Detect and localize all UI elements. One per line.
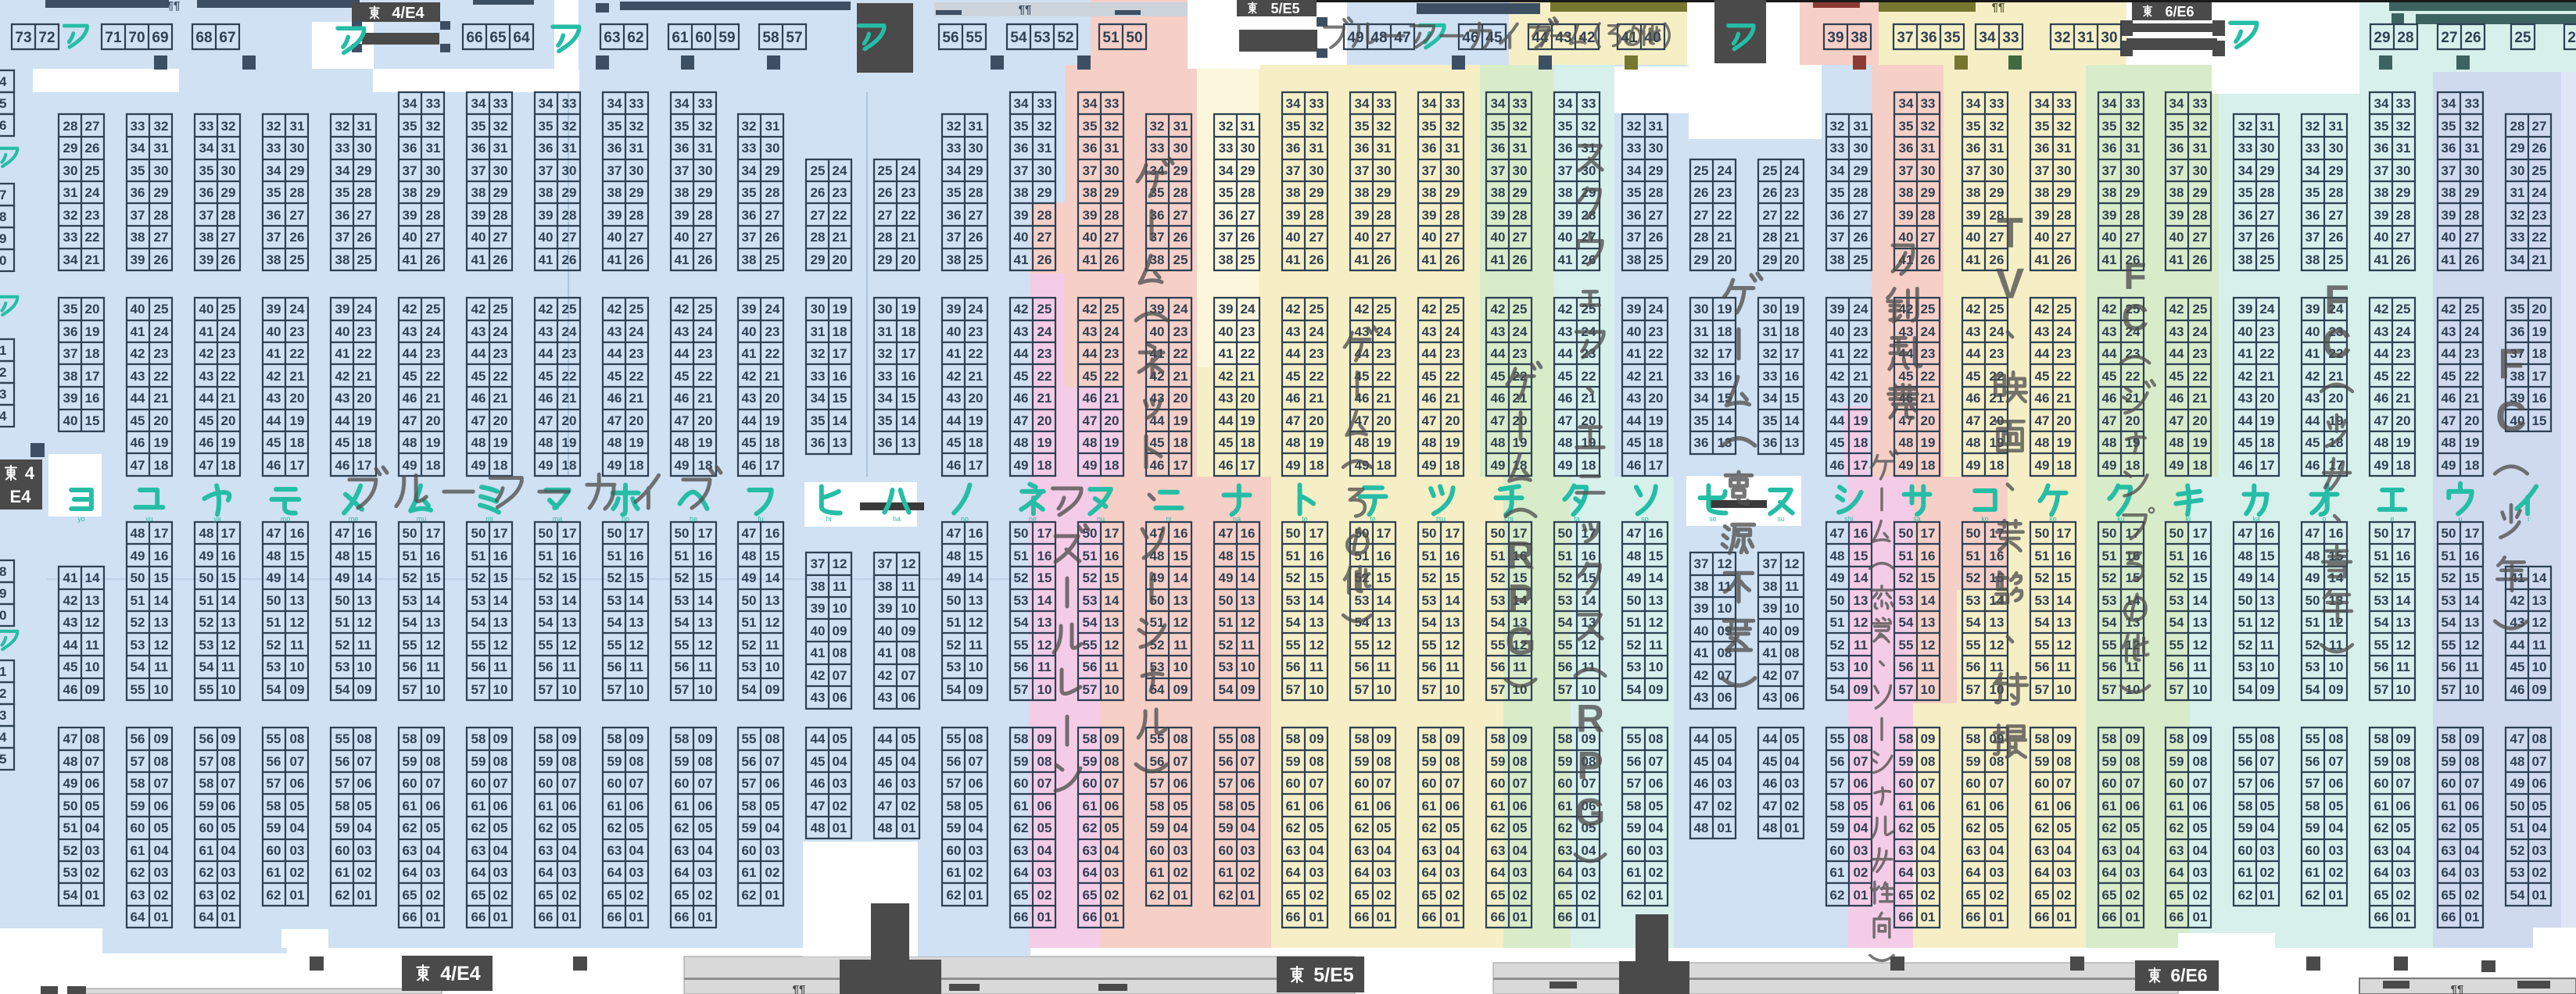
svg-text:20: 20 [629,413,644,428]
svg-text:23: 23 [2465,346,2480,361]
svg-text:10: 10 [901,601,916,616]
svg-text:57: 57 [1150,776,1165,791]
svg-text:43: 43 [2035,324,2050,339]
svg-text:45: 45 [199,413,214,428]
svg-text:31: 31 [493,141,508,156]
svg-text:60: 60 [1083,776,1098,791]
svg-text:38: 38 [63,369,78,384]
svg-text:36: 36 [335,208,350,223]
svg-text:22: 22 [2465,369,2480,384]
svg-text:66: 66 [2035,910,2050,924]
svg-text:49: 49 [1558,458,1573,473]
svg-text:22: 22 [85,230,100,245]
svg-text:27: 27 [2193,230,2208,245]
svg-text:58: 58 [1355,731,1370,746]
svg-text:50: 50 [131,570,145,585]
svg-text:60: 60 [1355,776,1370,791]
svg-text:57: 57 [1966,682,1981,697]
svg-text:60: 60 [1830,843,1845,858]
svg-text:13: 13 [493,615,508,630]
svg-text:54: 54 [742,682,757,697]
svg-text:05: 05 [833,731,847,746]
svg-text:10: 10 [357,660,372,674]
svg-text:36: 36 [1422,141,1437,156]
svg-text:29: 29 [2126,185,2141,200]
svg-text:63: 63 [1422,843,1437,858]
svg-text:52: 52 [335,638,350,653]
svg-text:15: 15 [85,413,100,428]
svg-text:53: 53 [1899,593,1914,608]
svg-text:18: 18 [1921,458,1936,473]
svg-text:12: 12 [1649,615,1664,630]
svg-text:30: 30 [1649,141,1664,156]
svg-text:46: 46 [1014,391,1029,406]
svg-text:45: 45 [2169,369,2184,384]
svg-text:45: 45 [742,435,757,450]
svg-text:37: 37 [1627,230,1642,245]
svg-text:51: 51 [471,549,486,563]
svg-text:33: 33 [1627,141,1642,156]
svg-text:57: 57 [2102,682,2117,697]
svg-text:31: 31 [2510,185,2525,200]
svg-text:36: 36 [675,141,690,156]
svg-text:64: 64 [2102,865,2117,880]
svg-text:21: 21 [1446,391,1460,406]
svg-text:22: 22 [1173,346,1188,361]
svg-text:22: 22 [2260,346,2275,361]
svg-text:04: 04 [1309,843,1324,858]
svg-text:shi: shi [1844,515,1854,523]
svg-text:02: 02 [2329,865,2344,880]
svg-text:04: 04 [1854,821,1868,835]
svg-text:21: 21 [493,391,508,406]
svg-text:01: 01 [1921,910,1936,924]
svg-text:01: 01 [1718,821,1732,835]
svg-text:08: 08 [1037,754,1052,769]
svg-text:53: 53 [1014,593,1029,608]
svg-text:e: e [2390,515,2394,523]
svg-text:39: 39 [2169,208,2184,223]
svg-text:60: 60 [267,843,281,858]
svg-text:24: 24 [1309,324,1324,339]
svg-text:61: 61 [947,865,962,880]
svg-text:05: 05 [901,731,916,746]
svg-text:40: 40 [2035,230,2050,245]
svg-text:52: 52 [2035,570,2050,585]
svg-text:56: 56 [2442,660,2456,674]
svg-text:24: 24 [2193,324,2208,339]
svg-text:10: 10 [562,682,577,697]
svg-text:05: 05 [1921,821,1936,835]
svg-text:18: 18 [2126,458,2141,473]
svg-text:24: 24 [1377,324,1392,339]
svg-text:53: 53 [403,593,417,608]
svg-text:47: 47 [1422,413,1437,428]
svg-text:66: 66 [2102,910,2117,924]
svg-text:20: 20 [2396,413,2411,428]
svg-text:28: 28 [878,230,893,245]
svg-text:08: 08 [357,731,372,746]
svg-text:15: 15 [1921,570,1936,585]
svg-text:34: 34 [742,163,757,178]
svg-text:24: 24 [426,324,441,339]
svg-text:05: 05 [2126,821,2141,835]
svg-text:01: 01 [2126,910,2141,924]
svg-text:64: 64 [1014,865,1029,880]
svg-text:03: 03 [1241,843,1256,858]
svg-text:38: 38 [1355,185,1370,200]
svg-text:20: 20 [1037,413,1052,428]
svg-text:64: 64 [0,730,7,745]
svg-text:15: 15 [2260,549,2275,563]
svg-text:21: 21 [1718,230,1732,245]
svg-text:56: 56 [1219,754,1234,769]
svg-text:53: 53 [1219,660,1234,674]
svg-text:07: 07 [562,776,577,791]
svg-text:27: 27 [2441,30,2457,46]
svg-text:61: 61 [471,799,486,813]
svg-text:01: 01 [221,910,236,924]
svg-text:01: 01 [2396,910,2411,924]
svg-text:02: 02 [1173,865,1188,880]
svg-text:61: 61 [1014,799,1029,813]
svg-text:39: 39 [675,208,690,223]
svg-text:40: 40 [1219,324,1234,339]
svg-text:05: 05 [493,821,508,835]
svg-text:57: 57 [607,682,622,697]
svg-text:33: 33 [426,96,441,111]
svg-text:24: 24 [2057,324,2072,339]
svg-text:38: 38 [1286,185,1301,200]
svg-text:44: 44 [1491,346,1506,361]
svg-text:65: 65 [1083,888,1098,903]
svg-text:16: 16 [85,391,100,406]
svg-text:01: 01 [1173,888,1188,903]
svg-text:11: 11 [1241,638,1255,653]
svg-text:18: 18 [1105,458,1120,473]
svg-text:18: 18 [1854,435,1868,450]
svg-text:42: 42 [1558,302,1573,316]
svg-text:35: 35 [1355,119,1370,134]
svg-text:25: 25 [562,302,577,316]
svg-text:58: 58 [1422,731,1437,746]
svg-text:58: 58 [947,799,962,813]
svg-text:61: 61 [742,865,757,880]
svg-text:59: 59 [947,821,962,835]
svg-text:54: 54 [675,615,690,630]
svg-text:08: 08 [1513,754,1528,769]
svg-text:16: 16 [1377,549,1392,563]
svg-text:63: 63 [0,708,6,723]
svg-text:53: 53 [199,638,214,653]
svg-text:63: 63 [1355,843,1370,858]
svg-text:59: 59 [539,754,554,769]
svg-text:09: 09 [221,731,236,746]
svg-text:16: 16 [1854,526,1868,541]
svg-text:46: 46 [0,118,6,133]
svg-text:E4: E4 [10,487,32,506]
svg-text:36: 36 [2374,141,2389,156]
svg-text:46: 46 [1083,391,1098,406]
svg-text:28: 28 [2396,208,2411,223]
svg-text:27: 27 [2329,208,2344,223]
svg-text:17: 17 [1173,458,1188,473]
svg-text:36: 36 [2510,324,2525,339]
svg-text:32: 32 [2193,119,2208,134]
svg-text:50: 50 [947,593,962,608]
svg-text:58: 58 [1966,731,1981,746]
svg-text:28: 28 [1854,185,1868,200]
svg-text:32: 32 [1105,119,1120,134]
svg-text:13: 13 [290,593,305,608]
svg-text:40: 40 [1899,230,1914,245]
svg-text:34: 34 [1830,163,1845,178]
svg-text:57: 57 [2306,776,2320,791]
svg-text:11: 11 [1649,638,1663,653]
svg-text:01: 01 [2260,888,2275,903]
svg-text:38: 38 [1627,252,1642,267]
svg-text:37: 37 [1558,163,1573,178]
svg-text:26: 26 [1309,252,1324,267]
svg-text:23: 23 [2396,346,2411,361]
svg-text:37: 37 [403,163,417,178]
svg-text:44: 44 [403,346,417,361]
svg-text:18: 18 [1718,324,1732,339]
svg-text:37: 37 [878,556,893,571]
svg-text:59: 59 [199,799,214,813]
svg-text:10: 10 [85,660,100,674]
svg-text:04: 04 [969,821,983,835]
svg-text:49: 49 [2510,776,2525,791]
svg-text:20: 20 [154,413,169,428]
svg-text:45: 45 [2306,435,2320,450]
svg-text:17: 17 [1309,526,1324,541]
svg-text:31: 31 [1446,141,1460,156]
svg-text:23: 23 [1446,346,1460,361]
svg-text:19: 19 [833,302,847,316]
svg-text:14: 14 [493,593,508,608]
svg-text:16: 16 [1990,549,2005,563]
svg-text:04: 04 [2193,843,2208,858]
svg-text:51: 51 [2510,821,2525,835]
svg-text:11: 11 [833,579,847,594]
svg-text:31: 31 [698,141,713,156]
svg-text:50: 50 [1219,593,1234,608]
svg-text:06: 06 [2057,799,2072,813]
svg-text:08: 08 [426,754,441,769]
svg-text:16: 16 [1309,549,1324,563]
svg-text:09: 09 [1309,731,1324,746]
svg-text:11: 11 [2532,638,2546,653]
svg-text:09: 09 [2126,731,2141,746]
svg-text:12: 12 [1377,638,1392,653]
svg-text:40: 40 [2442,230,2456,245]
svg-text:49: 49 [63,776,78,791]
svg-text:51: 51 [607,549,622,563]
svg-text:30: 30 [1037,163,1052,178]
svg-text:07: 07 [1037,776,1052,791]
svg-text:62: 62 [1083,821,1098,835]
svg-text:17: 17 [765,458,780,473]
svg-text:48: 48 [2306,549,2320,563]
svg-text:20: 20 [1309,413,1324,428]
svg-text:05: 05 [1649,799,1664,813]
svg-text:19: 19 [2396,435,2411,450]
svg-text:45: 45 [1966,369,1981,384]
svg-text:64: 64 [2442,865,2456,880]
svg-text:14: 14 [2465,593,2480,608]
svg-text:60: 60 [1627,843,1642,858]
svg-text:55: 55 [335,731,350,746]
svg-text:60: 60 [947,843,962,858]
svg-text:57: 57 [471,682,486,697]
svg-text:52: 52 [2169,570,2184,585]
svg-text:04: 04 [2329,821,2344,835]
svg-text:22: 22 [765,346,780,361]
svg-text:49: 49 [1014,458,1029,473]
svg-text:63: 63 [604,30,620,46]
svg-text:28: 28 [426,208,441,223]
svg-text:17: 17 [1037,526,1052,541]
svg-text:55: 55 [1355,638,1370,653]
svg-text:66: 66 [1558,910,1573,924]
svg-text:62: 62 [403,821,417,835]
svg-text:28: 28 [811,230,826,245]
svg-text:04: 04 [1105,843,1120,858]
svg-text:32: 32 [2465,119,2480,134]
svg-text:17: 17 [629,526,644,541]
svg-text:07: 07 [1649,754,1664,769]
svg-text:19: 19 [221,435,236,450]
svg-text:14: 14 [629,593,644,608]
svg-text:03: 03 [2329,843,2344,858]
svg-text:11: 11 [154,660,168,674]
svg-text:12: 12 [1854,615,1868,630]
svg-text:21: 21 [1854,369,1868,384]
svg-text:05: 05 [2329,799,2344,813]
svg-text:03: 03 [357,843,372,858]
svg-text:12: 12 [901,556,916,571]
svg-text:18: 18 [1241,435,1256,450]
svg-text:42: 42 [2374,302,2389,316]
svg-text:25: 25 [85,163,100,178]
svg-text:01: 01 [562,910,577,924]
svg-text:16: 16 [1649,526,1664,541]
svg-text:60: 60 [2238,843,2253,858]
svg-text:30: 30 [969,141,983,156]
svg-text:34: 34 [1979,30,1996,46]
svg-text:28: 28 [2057,208,2072,223]
svg-text:43: 43 [471,324,486,339]
svg-text:29: 29 [562,185,577,200]
svg-text:18: 18 [290,435,305,450]
svg-text:57: 57 [267,776,281,791]
svg-text:43: 43 [1219,391,1234,406]
svg-text:14: 14 [1377,593,1392,608]
svg-text:04: 04 [1377,843,1392,858]
svg-text:46: 46 [742,458,757,473]
svg-text:P: P [1507,576,1533,620]
svg-text:13: 13 [1921,615,1936,630]
svg-text:22: 22 [357,346,372,361]
svg-text:24: 24 [357,302,372,316]
svg-text:48: 48 [2035,435,2050,450]
svg-text:12: 12 [2532,615,2547,630]
svg-text:31: 31 [2465,141,2480,156]
svg-text:16: 16 [2465,549,2480,563]
svg-text:42: 42 [1694,668,1709,683]
svg-text:11: 11 [2057,660,2071,674]
svg-text:07: 07 [901,668,916,683]
svg-text:19: 19 [1377,435,1392,450]
svg-text:23: 23 [1718,185,1732,200]
svg-text:05: 05 [2260,799,2275,813]
svg-text:25: 25 [2396,302,2411,316]
svg-text:26: 26 [2465,252,2480,267]
svg-text:18: 18 [426,458,441,473]
svg-text:33: 33 [1037,96,1052,111]
svg-text:32: 32 [1150,119,1165,134]
svg-text:32: 32 [1627,119,1642,134]
svg-text:46: 46 [947,458,962,473]
svg-text:17: 17 [154,526,169,541]
svg-text:63: 63 [199,888,214,903]
svg-text:10: 10 [1037,682,1052,697]
svg-text:31: 31 [629,141,644,156]
svg-text:39: 39 [539,208,554,223]
svg-text:60: 60 [2102,776,2117,791]
svg-text:44: 44 [1422,346,1437,361]
svg-text:59: 59 [335,821,350,835]
svg-text:10: 10 [1377,682,1392,697]
svg-text:39: 39 [1827,30,1843,46]
svg-text:29: 29 [290,163,305,178]
svg-text:54: 54 [1286,615,1301,630]
svg-text:49: 49 [0,231,6,246]
svg-text:48: 48 [0,209,6,224]
svg-text:40: 40 [1150,324,1165,339]
svg-text:35: 35 [2169,119,2184,134]
svg-text:38: 38 [403,185,417,200]
svg-text:21: 21 [2329,369,2344,384]
svg-text:45: 45 [1558,369,1573,384]
svg-text:56: 56 [742,754,757,769]
svg-text:55: 55 [2102,638,2117,653]
svg-text:17: 17 [1241,458,1256,473]
svg-text:28: 28 [1649,185,1664,200]
svg-text:43: 43 [1627,391,1642,406]
svg-text:08: 08 [629,754,644,769]
svg-text:52: 52 [2238,638,2253,653]
svg-text:39: 39 [1083,208,1098,223]
svg-text:08: 08 [2329,731,2344,746]
svg-text:27: 27 [1377,230,1392,245]
svg-text:07: 07 [2193,776,2208,791]
svg-text:34: 34 [2035,96,2050,111]
svg-text:43: 43 [2306,391,2320,406]
svg-text:06: 06 [1990,799,2005,813]
svg-text:40: 40 [199,302,214,316]
svg-text:22: 22 [1241,346,1256,361]
svg-text:15: 15 [2532,413,2547,428]
svg-text:62: 62 [1830,888,1845,903]
svg-text:57: 57 [539,682,554,697]
svg-text:23: 23 [85,208,100,223]
svg-text:05: 05 [290,799,305,813]
svg-text:61: 61 [2169,799,2184,813]
svg-text:ta: ta [1574,515,1580,523]
svg-text:31: 31 [878,324,893,339]
